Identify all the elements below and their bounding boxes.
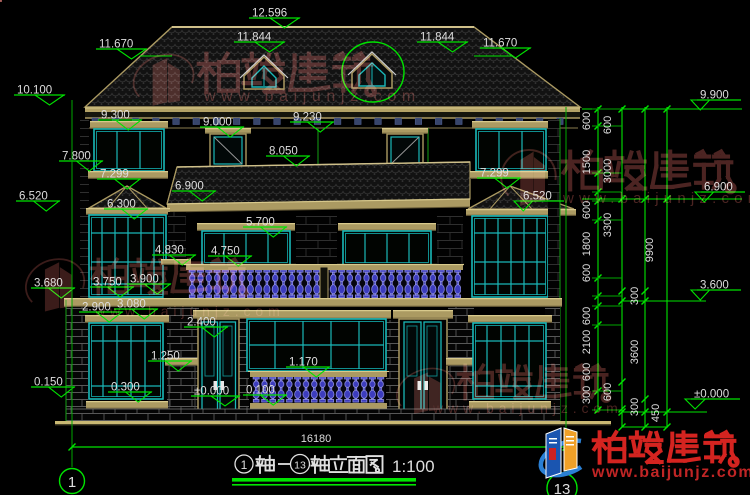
svg-text:9900: 9900 bbox=[644, 238, 656, 262]
svg-text:1800: 1800 bbox=[581, 232, 593, 256]
svg-text:600: 600 bbox=[602, 116, 614, 134]
svg-text:600: 600 bbox=[581, 307, 593, 325]
svg-text:600: 600 bbox=[581, 264, 593, 282]
svg-text:www.baijunjz.com: www.baijunjz.com bbox=[432, 400, 623, 416]
svg-text:300: 300 bbox=[629, 287, 641, 305]
svg-text:www.baijunjz.com: www.baijunjz.com bbox=[94, 303, 285, 319]
svg-text:3600: 3600 bbox=[629, 340, 641, 364]
svg-text:600: 600 bbox=[581, 112, 593, 130]
svg-text:300: 300 bbox=[629, 398, 641, 416]
svg-text:16180: 16180 bbox=[301, 433, 332, 445]
svg-text:www.baijunjz.com: www.baijunjz.com bbox=[591, 464, 750, 481]
svg-text:www.baijunjz.com: www.baijunjz.com bbox=[562, 190, 750, 207]
svg-text:www.baijunjz.com: www.baijunjz.com bbox=[203, 88, 421, 105]
svg-text:1: 1 bbox=[68, 474, 76, 491]
svg-text:1:100: 1:100 bbox=[392, 457, 435, 476]
svg-text:2100: 2100 bbox=[581, 330, 593, 354]
svg-text:1: 1 bbox=[241, 458, 248, 472]
svg-text:450: 450 bbox=[650, 404, 662, 422]
svg-text:13: 13 bbox=[554, 481, 571, 495]
svg-text:3300: 3300 bbox=[602, 213, 614, 237]
svg-text:13: 13 bbox=[294, 460, 306, 472]
